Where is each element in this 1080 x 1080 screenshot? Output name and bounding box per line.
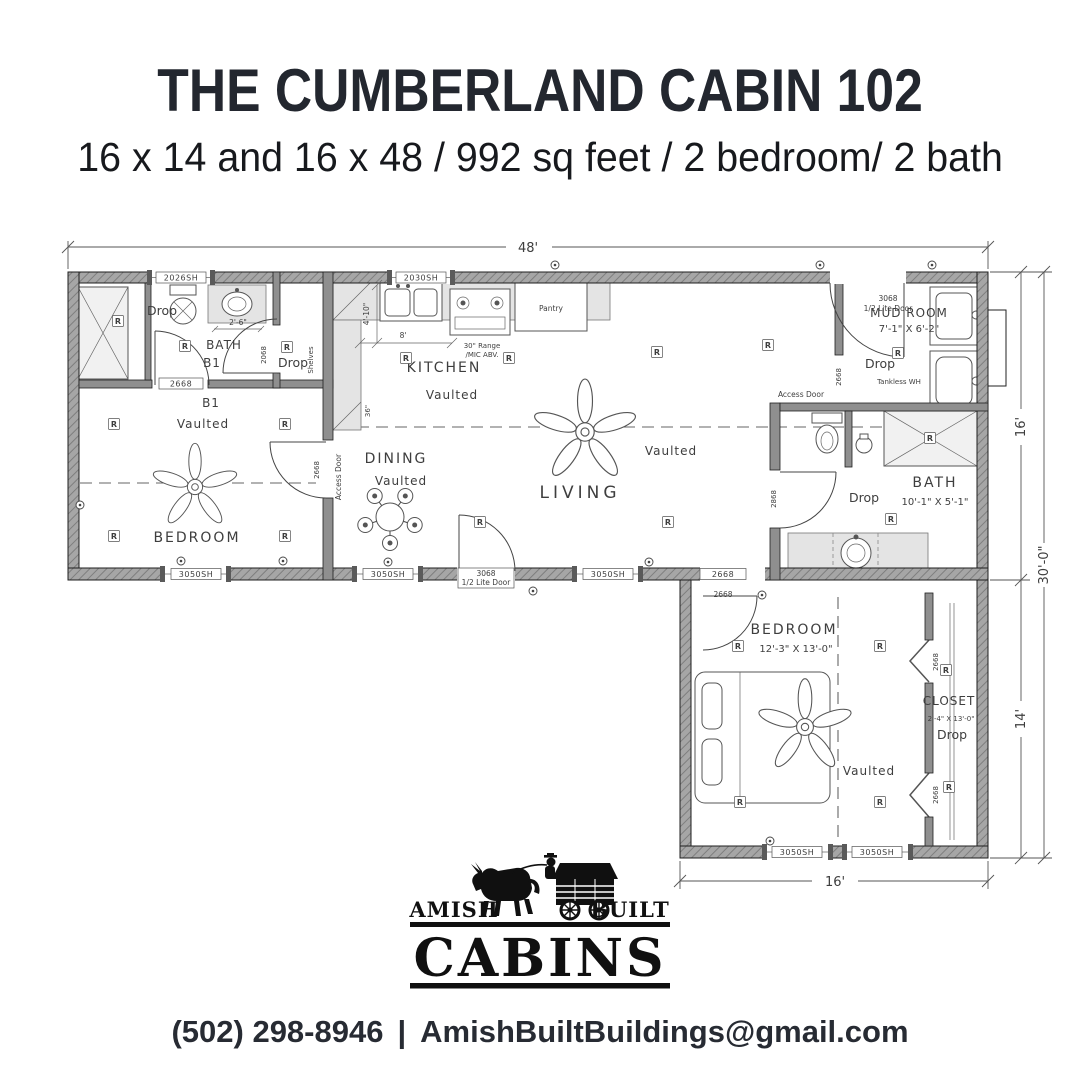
label-drop-closet: Drop	[937, 727, 967, 742]
svg-text:8': 8'	[400, 331, 407, 340]
label-access-door-bath: Access Door	[778, 390, 825, 399]
svg-text:2668: 2668	[713, 590, 732, 599]
label-closet: CLOSET	[923, 694, 976, 708]
svg-text:R: R	[182, 342, 188, 351]
label-living: LIVING	[539, 483, 620, 503]
svg-text:R: R	[282, 532, 288, 541]
svg-text:2668: 2668	[712, 570, 734, 579]
label-bedroom2: BEDROOM	[750, 622, 837, 638]
svg-text:R: R	[877, 798, 883, 807]
svg-text:R: R	[665, 518, 671, 527]
svg-text:3050SH: 3050SH	[780, 848, 814, 857]
floor-plan: 2026SH 2030SH 3068 1/2 Lite Door 3050SH	[0, 225, 1080, 915]
label-mudroom-size: 7'-1" X 6'-2"	[879, 324, 940, 335]
exterior-bump-out	[988, 310, 1006, 386]
dim-overall-width: 48'	[518, 241, 538, 256]
svg-text:R: R	[737, 798, 743, 807]
svg-text:R: R	[888, 515, 894, 524]
dim-lower-depth: 14'	[1014, 709, 1029, 729]
label-shelves: Shelves	[307, 346, 315, 374]
footer-email: AmishBuiltBuildings@gmail.com	[420, 1014, 908, 1049]
logo-amish-text: AMISH	[408, 897, 498, 922]
label-closet-size: 2'-4" X 13'-0"	[928, 715, 975, 723]
footer-phone: (502) 298-8946	[171, 1014, 383, 1049]
svg-text:R: R	[506, 354, 512, 363]
window-2030sh: 2030SH	[387, 270, 455, 285]
label-tankless: Tankless WH	[876, 378, 921, 386]
window-3050sh-1: 3050SH	[160, 566, 231, 582]
svg-text:R: R	[111, 420, 117, 429]
label-bath2-size: 10'-1" X 5'-1"	[902, 497, 969, 508]
label-b1: B1	[202, 396, 220, 410]
svg-text:R: R	[877, 642, 883, 651]
dryer-icon	[930, 351, 980, 411]
svg-text:2668: 2668	[170, 380, 192, 389]
svg-text:R: R	[946, 783, 952, 792]
label-drop-mudroom: Drop	[865, 356, 895, 371]
company-logo: AMISH BUILT CABINS	[404, 853, 676, 991]
window-3050sh-4: 3050SH	[762, 844, 833, 860]
svg-text:2668: 2668	[313, 461, 321, 479]
svg-text:2'-6": 2'-6"	[229, 318, 247, 327]
vanity-bath2-icon	[788, 533, 928, 573]
svg-text:3050SH: 3050SH	[860, 848, 894, 857]
svg-text:R: R	[111, 532, 117, 541]
svg-text:R: R	[477, 518, 483, 527]
svg-text:R: R	[654, 348, 660, 357]
svg-text:2068: 2068	[260, 346, 268, 364]
label-kitchen-vaulted: Vaulted	[426, 388, 478, 402]
label-bedroom1: BEDROOM	[153, 530, 240, 546]
svg-text:3068: 3068	[878, 294, 897, 303]
label-dining: DINING	[365, 451, 428, 467]
svg-text:4'-10": 4'-10"	[362, 303, 371, 326]
label-access-door-dining: Access Door	[334, 453, 343, 500]
svg-text:2030SH: 2030SH	[404, 274, 438, 283]
mudroom-opening-label: 2668	[835, 368, 843, 386]
label-bath1: BATH	[206, 338, 242, 352]
label-living-vaulted: Vaulted	[645, 444, 697, 458]
page-title-text: THE CUMBERLAND CABIN 102	[157, 56, 922, 125]
label-kitchen: KITCHEN	[407, 360, 482, 376]
svg-text:36": 36"	[364, 405, 372, 417]
page-title: THE CUMBERLAND CABIN 102	[0, 56, 1080, 125]
svg-text:1/2 Lite Door: 1/2 Lite Door	[462, 578, 512, 587]
closet-door-label: 2668	[932, 786, 940, 804]
dim-main-depth: 16'	[1014, 417, 1029, 437]
svg-text:R: R	[943, 666, 949, 675]
svg-text:R: R	[895, 349, 901, 358]
window-3050sh-2: 3050SH	[352, 566, 423, 582]
svg-text:R: R	[284, 343, 290, 352]
svg-text:3050SH: 3050SH	[371, 570, 405, 579]
svg-text:2026SH: 2026SH	[164, 274, 198, 283]
closet-door-label: 2668	[932, 653, 940, 671]
footer-divider: |	[397, 1014, 406, 1049]
label-mudroom: MUD ROOM	[870, 306, 948, 320]
svg-text:R: R	[282, 420, 288, 429]
page-subtitle-text: 16 x 14 and 16 x 48 / 992 sq feet / 2 be…	[77, 134, 1003, 181]
page-subtitle: 16 x 14 and 16 x 48 / 992 sq feet / 2 be…	[0, 134, 1080, 181]
label-range2: /MIC ABV.	[465, 351, 498, 359]
svg-text:3050SH: 3050SH	[591, 570, 625, 579]
logo-cabins-text: CABINS	[413, 928, 666, 989]
label-bath2: BATH	[912, 475, 957, 491]
window-3050sh-3: 3050SH	[572, 566, 643, 582]
range-icon	[450, 289, 510, 335]
svg-text:R: R	[735, 642, 741, 651]
shower-b1-icon	[78, 287, 128, 379]
label-drop-bath2: Drop	[849, 490, 879, 505]
dim-lower-width: 16'	[825, 875, 845, 890]
label-range1: 30" Range	[464, 342, 501, 350]
poster-page: THE CUMBERLAND CABIN 102 16 x 14 and 16 …	[0, 0, 1080, 1080]
svg-text:2868: 2868	[770, 490, 778, 508]
label-pantry: Pantry	[539, 304, 564, 313]
dim-total-depth: 30'-0"	[1037, 545, 1052, 584]
logo-divider-bottom	[410, 983, 670, 989]
logo-built-text: BUILT	[590, 897, 670, 922]
logo-divider-top	[410, 922, 670, 927]
label-bedroom2-vaulted: Vaulted	[843, 764, 895, 778]
svg-text:R: R	[115, 317, 121, 326]
svg-text:3050SH: 3050SH	[179, 570, 213, 579]
contact-footer: (502) 298-8946|AmishBuiltBuildings@gmail…	[0, 1014, 1080, 1050]
window-3050sh-5: 3050SH	[842, 844, 913, 860]
kitchen-sink-icon	[380, 283, 442, 321]
svg-text:R: R	[927, 434, 933, 443]
label-drop-bath1: Drop	[147, 303, 177, 318]
label-bath1-b1: B1	[203, 356, 221, 370]
label-b1-vaulted: Vaulted	[177, 417, 229, 431]
label-dining-vaulted: Vaulted	[375, 474, 427, 488]
svg-text:R: R	[403, 354, 409, 363]
window-2026sh: 2026SH	[147, 270, 215, 285]
label-bedroom2-size: 12'-3" X 13'-0"	[759, 644, 832, 655]
label-drop-hall: Drop	[278, 355, 308, 370]
svg-text:R: R	[765, 341, 771, 350]
svg-text:3068: 3068	[476, 569, 495, 578]
